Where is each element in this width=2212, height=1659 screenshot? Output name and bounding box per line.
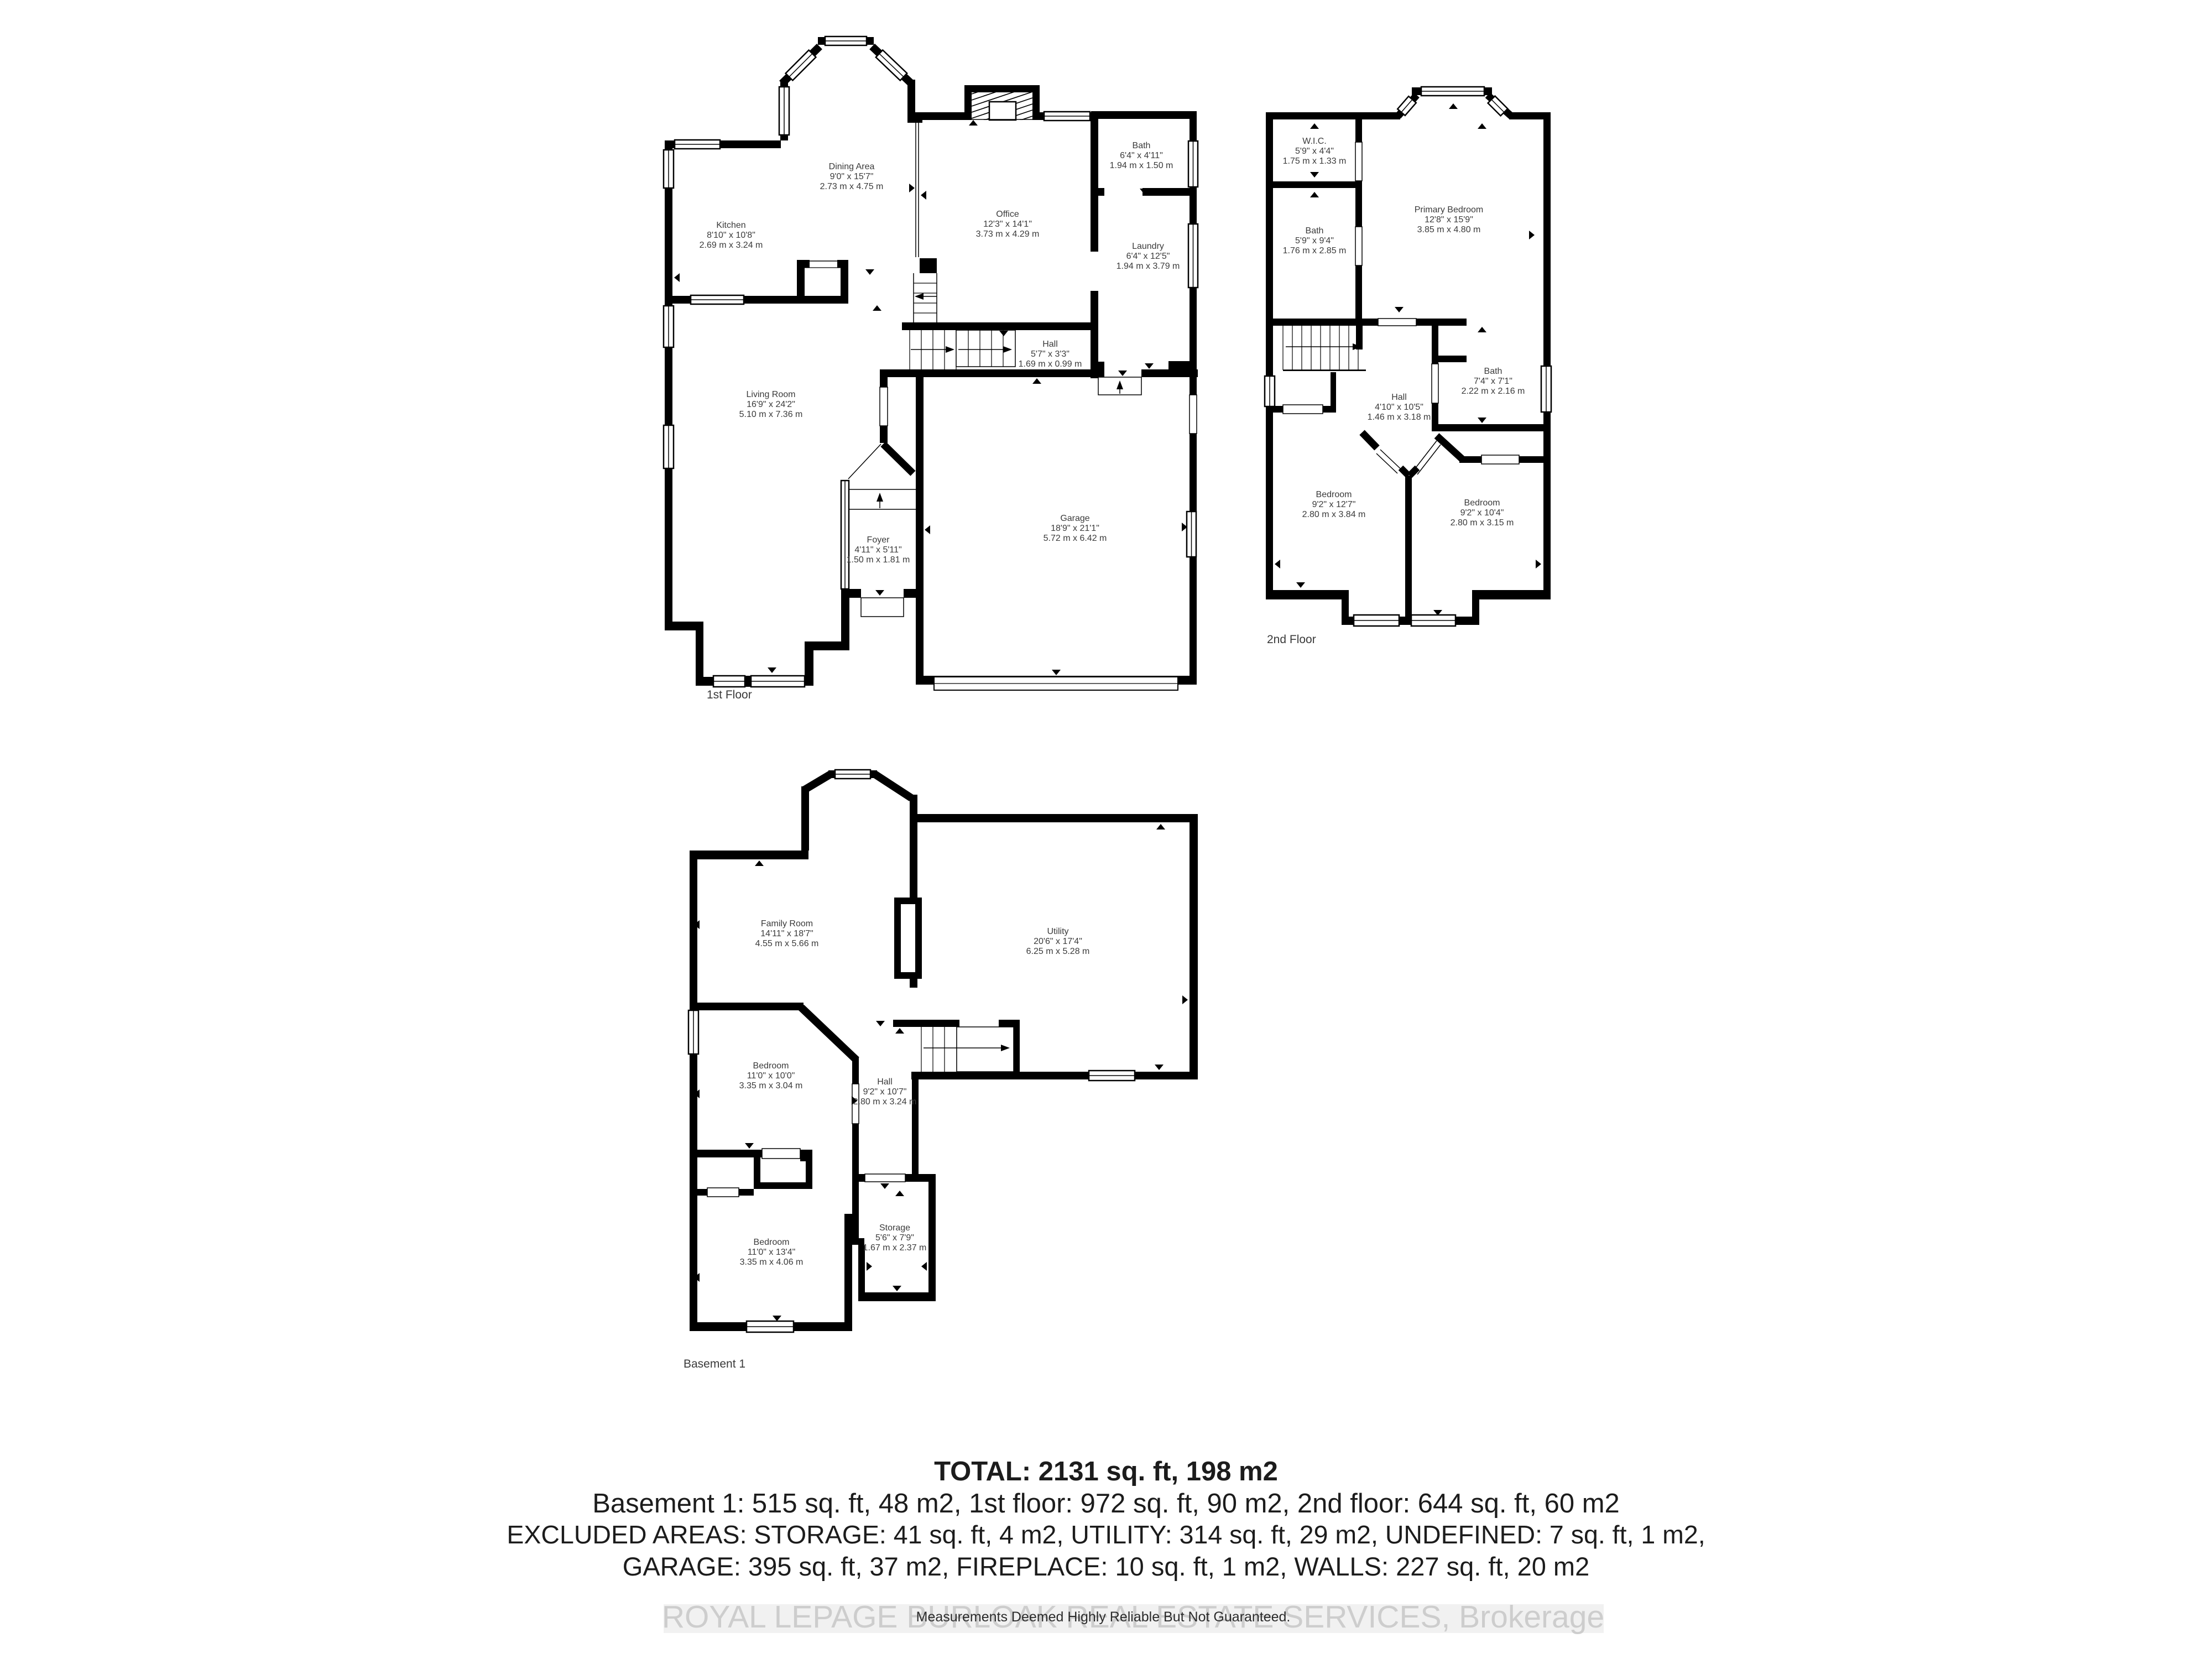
svg-text:Bath: Bath bbox=[1133, 141, 1151, 150]
svg-text:5.10 m x 7.36 m: 5.10 m x 7.36 m bbox=[739, 410, 803, 419]
svg-text:1.94 m x 3.79 m: 1.94 m x 3.79 m bbox=[1117, 262, 1180, 271]
svg-text:6'4" x 12'5": 6'4" x 12'5" bbox=[1126, 252, 1170, 261]
svg-text:Bath: Bath bbox=[1306, 226, 1324, 236]
svg-text:1.76 m x 2.85 m: 1.76 m x 2.85 m bbox=[1283, 246, 1347, 255]
svg-text:5'9" x 9'4": 5'9" x 9'4" bbox=[1295, 236, 1334, 246]
svg-text:Bedroom: Bedroom bbox=[754, 1238, 790, 1247]
svg-text:Hall: Hall bbox=[877, 1077, 893, 1087]
svg-text:Primary Bedroom: Primary Bedroom bbox=[1415, 205, 1483, 215]
svg-text:Family Room: Family Room bbox=[761, 919, 813, 928]
svg-text:18'9" x 21'1": 18'9" x 21'1" bbox=[1051, 524, 1099, 533]
svg-text:Bedroom: Bedroom bbox=[753, 1061, 789, 1071]
svg-text:Hall: Hall bbox=[1042, 340, 1058, 349]
svg-text:3.35 m x 4.06 m: 3.35 m x 4.06 m bbox=[740, 1258, 804, 1267]
svg-text:Storage: Storage bbox=[879, 1223, 910, 1233]
svg-text:4.55 m x 5.66 m: 4.55 m x 5.66 m bbox=[755, 939, 819, 948]
svg-text:Garage: Garage bbox=[1060, 514, 1089, 523]
svg-text:9'2" x 10'4": 9'2" x 10'4" bbox=[1460, 508, 1504, 518]
svg-text:TOTAL: 2131 sq. ft, 198 m2: TOTAL: 2131 sq. ft, 198 m2 bbox=[934, 1457, 1278, 1486]
svg-text:Measurements Deemed Highly Rel: Measurements Deemed Highly Reliable But … bbox=[916, 1609, 1291, 1625]
svg-text:Laundry: Laundry bbox=[1132, 242, 1164, 251]
svg-text:Foyer: Foyer bbox=[867, 535, 890, 545]
svg-text:4'10" x 10'5": 4'10" x 10'5" bbox=[1375, 403, 1423, 412]
svg-text:1.67 m x 2.37 m: 1.67 m x 2.37 m bbox=[863, 1243, 927, 1253]
svg-text:5'6" x 7'9": 5'6" x 7'9" bbox=[875, 1233, 914, 1243]
svg-text:2.69 m x 3.24 m: 2.69 m x 3.24 m bbox=[700, 241, 763, 250]
svg-text:9'2" x 12'7": 9'2" x 12'7" bbox=[1312, 500, 1356, 509]
svg-text:Bedroom: Bedroom bbox=[1316, 490, 1352, 499]
svg-text:Bedroom: Bedroom bbox=[1464, 498, 1500, 508]
svg-text:GARAGE: 395 sq. ft, 37 m2, FIR: GARAGE: 395 sq. ft, 37 m2, FIREPLACE: 10… bbox=[623, 1552, 1589, 1581]
svg-text:9'0" x 15'7": 9'0" x 15'7" bbox=[830, 172, 874, 181]
svg-text:20'6" x 17'4": 20'6" x 17'4" bbox=[1034, 937, 1082, 946]
svg-text:3.73 m x 4.29 m: 3.73 m x 4.29 m bbox=[976, 229, 1040, 239]
svg-text:5'7" x 3'3": 5'7" x 3'3" bbox=[1031, 349, 1070, 359]
svg-text:2.80 m x 3.15 m: 2.80 m x 3.15 m bbox=[1451, 518, 1514, 528]
svg-text:1.75 m x 1.33 m: 1.75 m x 1.33 m bbox=[1283, 156, 1347, 166]
svg-text:EXCLUDED AREAS: STORAGE: 41 sq: EXCLUDED AREAS: STORAGE: 41 sq. ft, 4 m2… bbox=[507, 1520, 1705, 1549]
svg-text:Basement 1: 515 sq. ft, 48 m2,: Basement 1: 515 sq. ft, 48 m2, 1st floor… bbox=[592, 1489, 1620, 1519]
svg-text:14'11" x 18'7": 14'11" x 18'7" bbox=[760, 929, 813, 938]
svg-text:7'4" x 7'1": 7'4" x 7'1" bbox=[1474, 377, 1512, 386]
svg-text:2.22 m x 2.16 m: 2.22 m x 2.16 m bbox=[1462, 387, 1525, 396]
svg-text:Dining Area: Dining Area bbox=[829, 162, 875, 171]
svg-text:Bath: Bath bbox=[1484, 367, 1503, 376]
svg-text:2nd Floor: 2nd Floor bbox=[1267, 633, 1316, 646]
svg-text:1.46 m x 3.18 m: 1.46 m x 3.18 m bbox=[1368, 413, 1431, 422]
svg-text:6.25 m x 5.28 m: 6.25 m x 5.28 m bbox=[1026, 947, 1090, 956]
svg-text:5.72 m x 6.42 m: 5.72 m x 6.42 m bbox=[1044, 534, 1107, 543]
svg-text:11'0" x 13'4": 11'0" x 13'4" bbox=[748, 1248, 796, 1257]
svg-text:6'4" x 4'11": 6'4" x 4'11" bbox=[1120, 151, 1163, 160]
svg-text:11'0" x 10'0": 11'0" x 10'0" bbox=[747, 1071, 795, 1081]
svg-text:Hall: Hall bbox=[1391, 393, 1407, 402]
svg-text:5'9" x 4'4": 5'9" x 4'4" bbox=[1295, 147, 1334, 156]
svg-text:12'8" x 15'9": 12'8" x 15'9" bbox=[1425, 215, 1473, 225]
svg-text:12'3" x 14'1": 12'3" x 14'1" bbox=[983, 220, 1032, 229]
svg-text:W.I.C.: W.I.C. bbox=[1302, 137, 1327, 146]
svg-text:Basement 1: Basement 1 bbox=[684, 1358, 745, 1370]
svg-text:1.69 m x 0.99 m: 1.69 m x 0.99 m bbox=[1019, 359, 1082, 369]
svg-text:3.35 m x 3.04 m: 3.35 m x 3.04 m bbox=[739, 1081, 803, 1091]
svg-text:2.73 m x 4.75 m: 2.73 m x 4.75 m bbox=[820, 182, 884, 191]
svg-text:2.80 m x 3.24 m: 2.80 m x 3.24 m bbox=[853, 1097, 917, 1107]
svg-text:8'10" x 10'8": 8'10" x 10'8" bbox=[707, 231, 755, 240]
svg-text:Utility: Utility bbox=[1047, 927, 1068, 936]
svg-text:9'2" x 10'7": 9'2" x 10'7" bbox=[863, 1087, 907, 1097]
svg-text:1.94 m x 1.50 m: 1.94 m x 1.50 m bbox=[1110, 161, 1173, 170]
svg-text:1.50 m x 1.81 m: 1.50 m x 1.81 m bbox=[847, 555, 910, 565]
svg-text:1st Floor: 1st Floor bbox=[707, 688, 752, 701]
svg-text:4'11" x 5'11": 4'11" x 5'11" bbox=[854, 545, 901, 555]
svg-text:Office: Office bbox=[996, 210, 1019, 219]
svg-text:2.80 m x 3.84 m: 2.80 m x 3.84 m bbox=[1302, 510, 1366, 519]
svg-text:16'9" x 24'2": 16'9" x 24'2" bbox=[747, 400, 795, 409]
svg-text:Living Room: Living Room bbox=[747, 390, 796, 399]
svg-text:Kitchen: Kitchen bbox=[716, 221, 745, 230]
svg-text:3.85 m x 4.80 m: 3.85 m x 4.80 m bbox=[1417, 225, 1481, 234]
